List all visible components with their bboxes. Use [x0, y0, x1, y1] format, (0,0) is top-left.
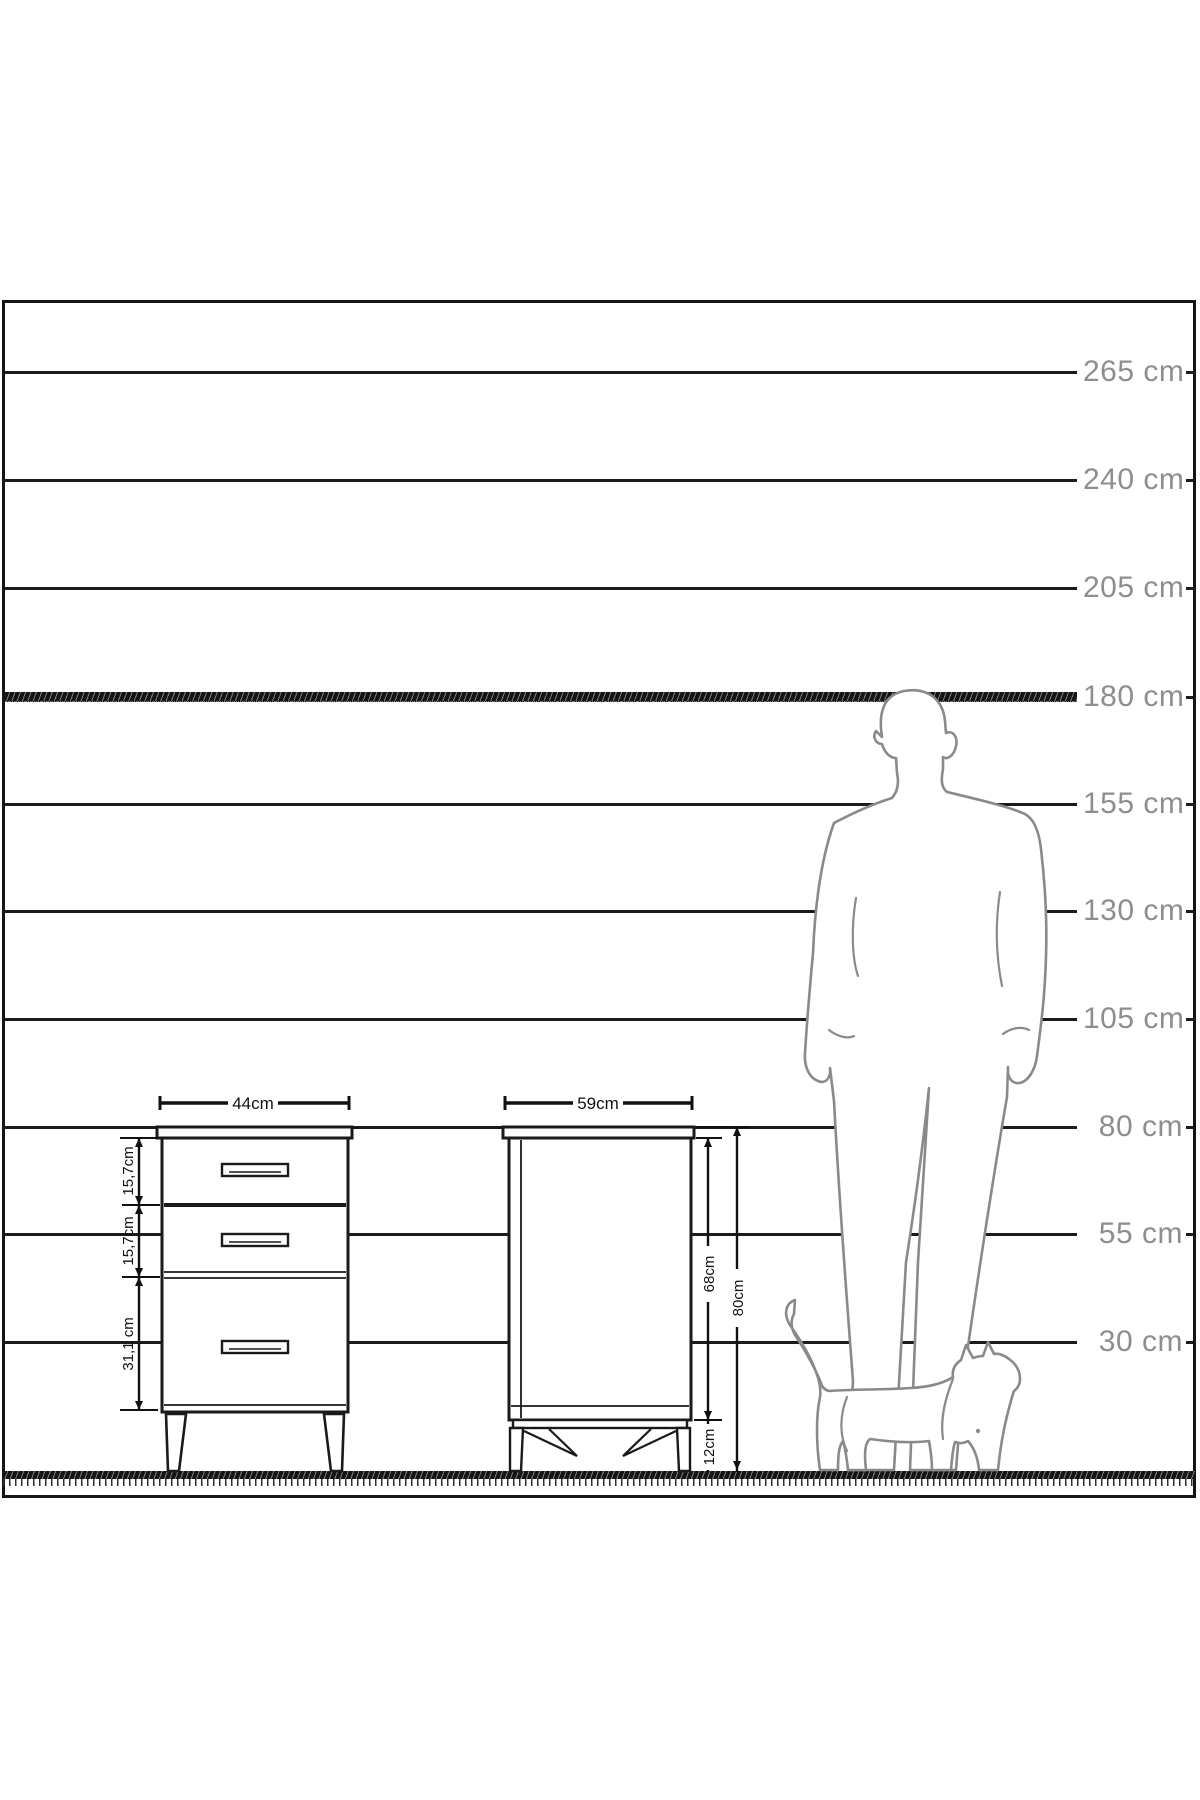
cabinet-top-panel [503, 1127, 694, 1138]
cabinet-top-panel [157, 1127, 352, 1138]
cabinet-side-body [509, 1138, 691, 1420]
total-height-label: 80cm [730, 1280, 747, 1317]
diagram-overlay: 44cm [0, 0, 1200, 1800]
dimension-heights: 68cm 12cm 80cm [694, 1127, 750, 1472]
leg-brace [524, 1429, 577, 1456]
cabinet-leg [510, 1428, 523, 1471]
depth-dimension-label: 59cm [577, 1094, 619, 1113]
dimension-width-44: 44cm [160, 1093, 349, 1113]
body-height-label: 68cm [701, 1256, 718, 1293]
cabinet-leg [324, 1414, 344, 1471]
drawer-height-label: 31,1 cm [120, 1317, 137, 1370]
drawer-handle [222, 1164, 288, 1176]
cat-spot [976, 1429, 980, 1433]
drawer-handle [222, 1234, 288, 1246]
drawer-handle [222, 1341, 288, 1353]
leg-height-label: 12cm [701, 1429, 718, 1466]
drawer-height-label: 15,7cm [120, 1146, 137, 1195]
drawer-height-label: 15,7cm [120, 1216, 137, 1265]
cabinet-leg [677, 1428, 690, 1471]
dimension-depth-59: 59cm [505, 1093, 692, 1113]
cabinet-bottom-rail [513, 1420, 687, 1428]
man-outline [805, 690, 1046, 1470]
dimension-drawer-heights: 15,7cm 15,7cm 31,1 cm [120, 1138, 160, 1410]
cabinet-side-view: 59cm 68cm [503, 1093, 750, 1472]
size-comparison-diagram: 265 cm 240 cm 205 cm 180 cm 155 cm 130 c… [0, 0, 1200, 1800]
cabinet-front-view: 44cm [120, 1093, 352, 1471]
width-dimension-label: 44cm [232, 1094, 274, 1113]
leg-brace [623, 1429, 676, 1456]
cabinet-leg [166, 1414, 186, 1471]
cabinet-body [162, 1138, 348, 1412]
man-silhouette [805, 690, 1046, 1470]
